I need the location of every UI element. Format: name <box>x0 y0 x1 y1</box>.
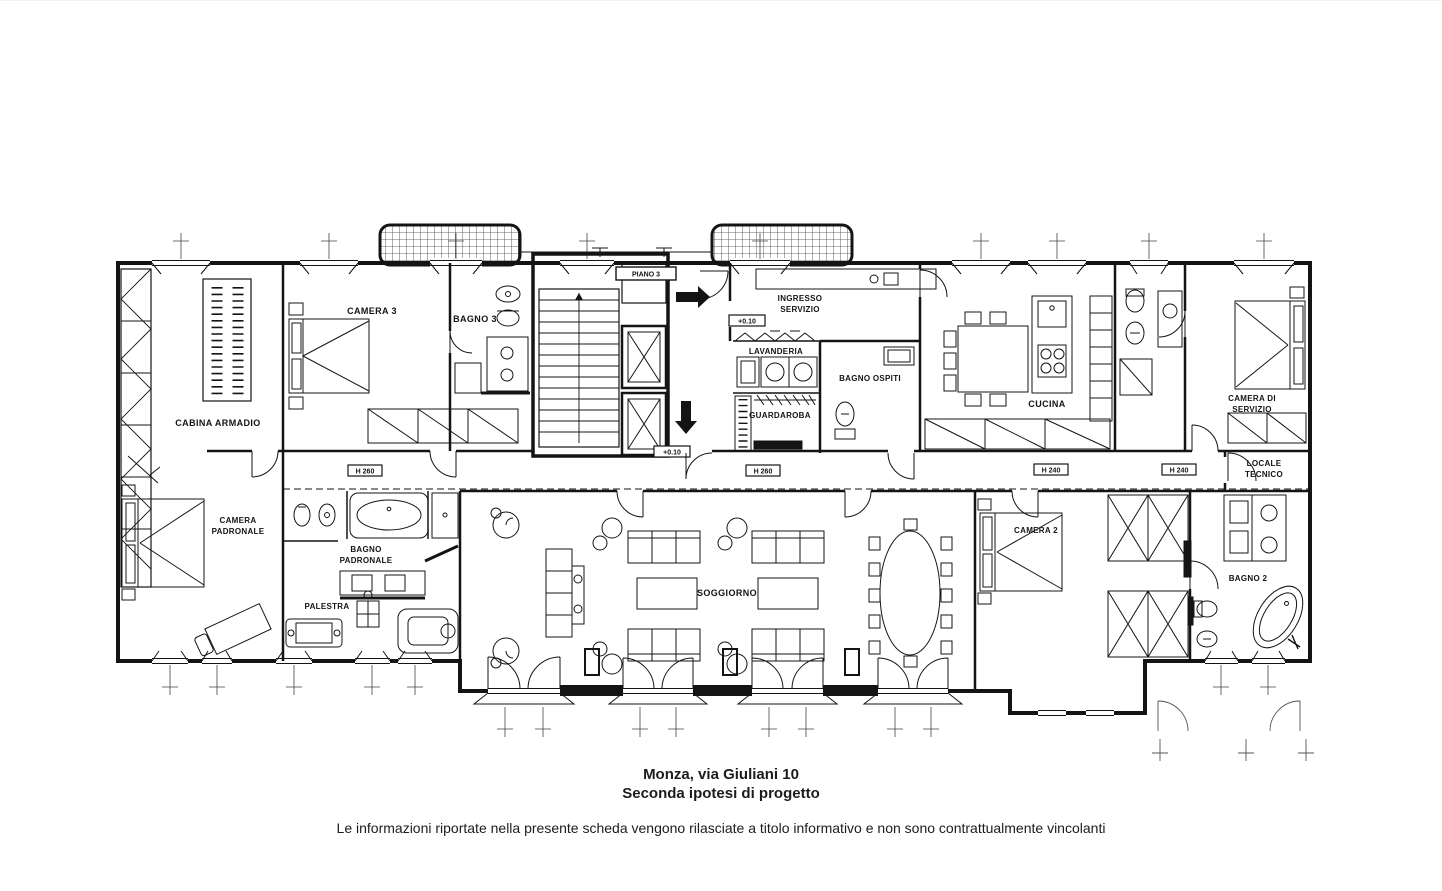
stair-core <box>533 254 668 456</box>
caption-line2: Seconda ipotesi di progetto <box>0 784 1442 803</box>
room-palestra <box>286 591 458 653</box>
room-label-locale-tecnico-2: TECNICO <box>1245 470 1283 479</box>
entry-arrows <box>675 286 710 434</box>
room-label-soggiorno: SOGGIORNO <box>697 588 757 598</box>
room-label-lavanderia: LAVANDERIA <box>749 347 803 356</box>
room-bagno-ospiti <box>835 347 914 439</box>
floor-plan: PIANO 3 +0.10 +0.10 H 260 H 260 H 240 H … <box>0 1 1442 891</box>
caption-disclaimer: Le informazioni riportate nella presente… <box>0 820 1442 836</box>
room-label-camera2: CAMERA 2 <box>1014 526 1058 535</box>
room-camera2 <box>978 495 1191 657</box>
room-label-bagno2: BAGNO 2 <box>1229 574 1268 583</box>
room-label-bagno3: BAGNO 3 <box>453 314 497 324</box>
room-label-palestra: PALESTRA <box>305 602 350 611</box>
bay-french-doors <box>474 657 962 737</box>
room-label-camera3: CAMERA 3 <box>347 306 397 316</box>
piano-label: PIANO 3 <box>632 272 660 279</box>
room-label-bagno-padronale-2: PADRONALE <box>340 556 393 565</box>
room-label-bagno-ospiti: BAGNO OSPITI <box>839 374 901 383</box>
room-camera-padronale <box>122 456 271 660</box>
windows-bottom-left <box>152 651 432 695</box>
floor-plan-sheet: PIANO 3 +0.10 +0.10 H 260 H 260 H 240 H … <box>0 0 1442 891</box>
entry-level-label: +0.10 <box>738 319 756 326</box>
piano-marker: PIANO 3 <box>616 267 676 280</box>
caption-title: Monza, via Giuliani 10 Seconda ipotesi d… <box>0 765 1442 803</box>
room-label-cabina-armadio: CABINA ARMADIO <box>175 418 260 428</box>
height-label-2: H 260 <box>754 469 773 476</box>
room-cabina-armadio <box>121 269 251 587</box>
room-cucina <box>925 296 1112 449</box>
room-label-camera-servizio-1: CAMERA DI <box>1228 394 1276 403</box>
exterior-wall <box>118 263 1310 713</box>
room-bagno3 <box>455 286 530 393</box>
windows-bottom-right <box>1038 651 1314 761</box>
room-label-ingresso-1: INGRESSO <box>778 294 823 303</box>
caption-line1: Monza, via Giuliani 10 <box>0 765 1442 784</box>
room-label-ingresso-2: SERVIZIO <box>780 305 820 314</box>
height-label-3: H 240 <box>1042 468 1061 475</box>
height-label-1: H 260 <box>356 469 375 476</box>
room-label-guardaroba: GUARDAROBA <box>749 411 811 420</box>
room-camera-servizio <box>1228 287 1306 443</box>
height-label-4: H 240 <box>1170 468 1189 475</box>
corridor-level-label: +0.10 <box>663 450 681 457</box>
room-label-camera-servizio-2: SERVIZIO <box>1232 405 1272 414</box>
room-guardaroba <box>735 395 816 451</box>
room-camera3 <box>289 303 518 443</box>
room-label-bagno-padronale-1: BAGNO <box>350 545 381 554</box>
room-label-camera-padronale-1: CAMERA <box>220 516 257 525</box>
room-label-locale-tecnico-1: LOCALE <box>1247 459 1282 468</box>
room-label-cucina: CUCINA <box>1028 399 1065 409</box>
room-label-camera-padronale-2: PADRONALE <box>212 527 265 536</box>
room-lavanderia <box>735 331 817 387</box>
room-bath-service <box>1120 289 1182 395</box>
